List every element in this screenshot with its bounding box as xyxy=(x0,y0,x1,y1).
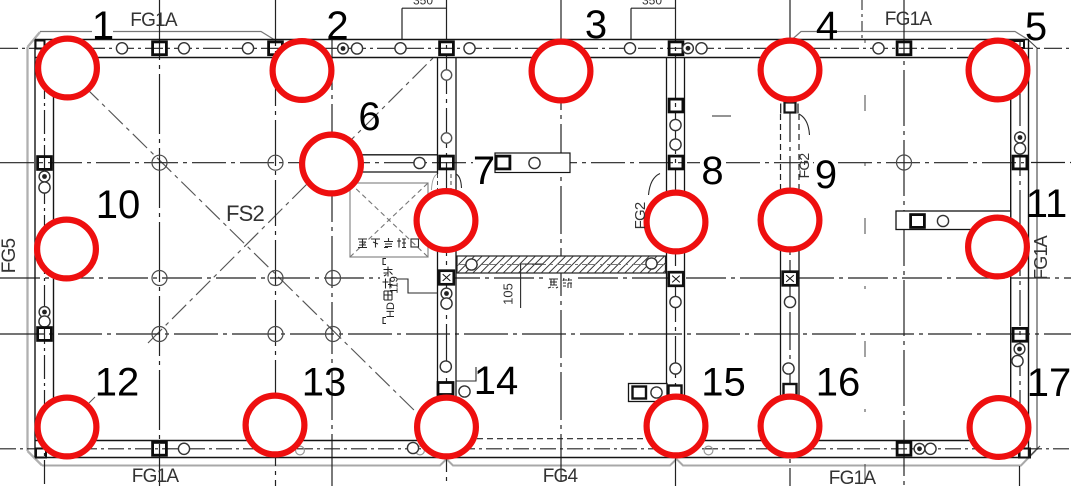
svg-text:13: 13 xyxy=(302,361,347,405)
svg-text:15: 15 xyxy=(701,361,746,405)
svg-text:350: 350 xyxy=(413,0,433,8)
svg-text:5: 5 xyxy=(1025,5,1047,49)
svg-text:FG1A: FG1A xyxy=(829,468,877,486)
svg-text:FG1A: FG1A xyxy=(1031,235,1051,280)
svg-text:12: 12 xyxy=(95,361,140,405)
svg-text:FG2: FG2 xyxy=(796,153,812,179)
svg-text:4: 4 xyxy=(816,4,838,48)
svg-text:FG5: FG5 xyxy=(0,238,20,273)
svg-text:2: 2 xyxy=(326,4,348,48)
svg-text:FS2: FS2 xyxy=(226,201,265,226)
svg-text:FG1A: FG1A xyxy=(132,466,180,486)
svg-text:FG4: FG4 xyxy=(543,466,579,486)
svg-text:105: 105 xyxy=(501,283,516,305)
svg-text:HD: HD xyxy=(385,302,397,318)
svg-text:1: 1 xyxy=(92,4,114,48)
svg-text:350: 350 xyxy=(642,0,662,8)
svg-text:6: 6 xyxy=(358,95,380,139)
svg-text:7: 7 xyxy=(473,149,495,193)
svg-text:14: 14 xyxy=(474,359,519,403)
svg-text:3: 3 xyxy=(585,3,607,47)
svg-text:9: 9 xyxy=(815,153,837,197)
svg-text:11: 11 xyxy=(1026,182,1068,226)
svg-text:FG2: FG2 xyxy=(632,202,649,229)
svg-text:FG1A: FG1A xyxy=(885,9,933,30)
svg-text:8: 8 xyxy=(701,149,723,193)
svg-text:10: 10 xyxy=(96,183,141,227)
svg-text:FG1A: FG1A xyxy=(130,10,178,31)
svg-text:17: 17 xyxy=(1027,361,1071,405)
svg-text:16: 16 xyxy=(816,361,861,405)
